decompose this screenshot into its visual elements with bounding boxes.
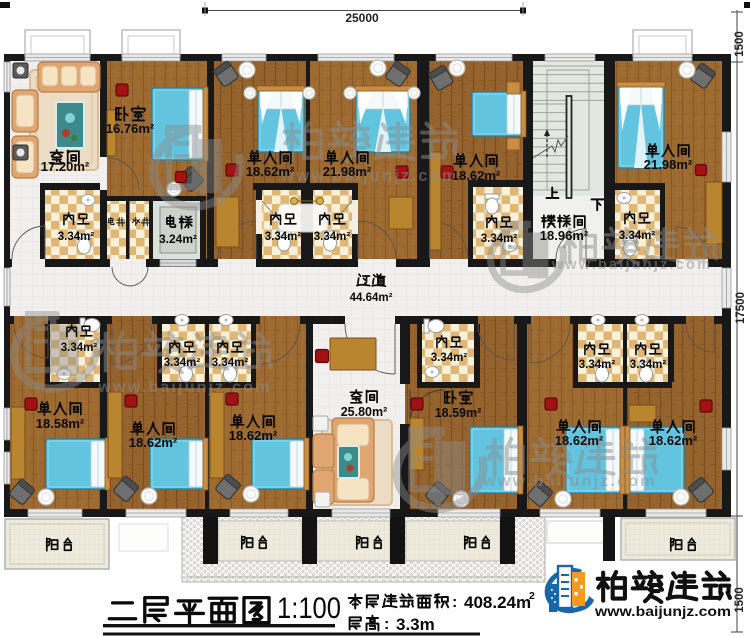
svg-text:18.59m²: 18.59m² xyxy=(435,406,482,420)
svg-text:3.34m²: 3.34m² xyxy=(61,342,98,354)
svg-text:18.62m²: 18.62m² xyxy=(555,433,604,448)
svg-text:21.98m²: 21.98m² xyxy=(323,164,372,179)
svg-text:3.34m²: 3.34m² xyxy=(164,357,201,369)
svg-text:25000: 25000 xyxy=(345,11,379,25)
svg-text:www.baijunjz.com: www.baijunjz.com xyxy=(551,257,712,273)
svg-text:18.62m²: 18.62m² xyxy=(129,435,178,450)
svg-text:3.34m²: 3.34m² xyxy=(431,352,468,364)
svg-text:3.34m²: 3.34m² xyxy=(481,233,518,245)
svg-text:18.96m²: 18.96m² xyxy=(540,228,589,243)
svg-text:3.34m²: 3.34m² xyxy=(212,357,249,369)
svg-text:3.34m²: 3.34m² xyxy=(579,359,616,371)
svg-text:2: 2 xyxy=(529,590,535,602)
svg-text:3.3m: 3.3m xyxy=(396,615,435,634)
svg-text:1500: 1500 xyxy=(734,31,746,57)
svg-text:3.34m²: 3.34m² xyxy=(619,230,656,242)
svg-text:17.20m²: 17.20m² xyxy=(41,159,90,174)
svg-text:21.98m²: 21.98m² xyxy=(644,157,693,172)
svg-text:www.baijunjz.com: www.baijunjz.com xyxy=(482,473,656,490)
svg-text:3.34m²: 3.34m² xyxy=(314,231,351,243)
svg-text::: : xyxy=(384,616,389,633)
svg-text:18.62m²: 18.62m² xyxy=(452,168,501,183)
svg-text::: : xyxy=(452,594,457,611)
svg-text:16.76m²: 16.76m² xyxy=(106,121,155,136)
svg-text:3.34m²: 3.34m² xyxy=(265,231,302,243)
svg-text:18.62m²: 18.62m² xyxy=(649,433,698,448)
svg-text:25.80m²: 25.80m² xyxy=(341,405,388,419)
svg-text:3.34m²: 3.34m² xyxy=(58,231,95,243)
svg-text:www.baijunjz.com: www.baijunjz.com xyxy=(97,379,271,396)
svg-text:1500: 1500 xyxy=(734,587,746,613)
svg-text:3.34m²: 3.34m² xyxy=(630,359,667,371)
svg-text:www.baijunjz.com: www.baijunjz.com xyxy=(594,603,731,619)
svg-text:18.62m²: 18.62m² xyxy=(246,164,295,179)
svg-text:44.64m²: 44.64m² xyxy=(350,292,393,304)
svg-text:18.62m²: 18.62m² xyxy=(229,428,278,443)
svg-text:3.24m²: 3.24m² xyxy=(159,232,197,246)
svg-text:18.58m²: 18.58m² xyxy=(36,416,85,431)
svg-text:408.24m: 408.24m xyxy=(464,593,531,612)
svg-text:1:100: 1:100 xyxy=(277,592,341,625)
svg-text:17500: 17500 xyxy=(735,292,747,324)
